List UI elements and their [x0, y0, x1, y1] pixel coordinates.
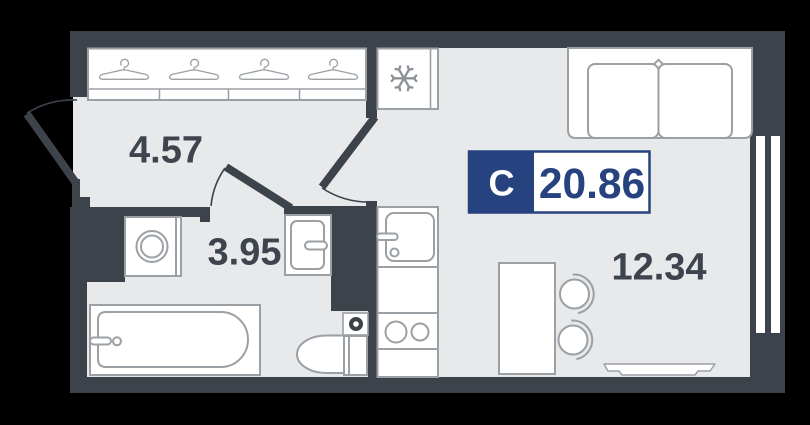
svg-text:12.34: 12.34 — [611, 247, 706, 289]
svg-text:20.86: 20.86 — [539, 161, 645, 208]
svg-text:3.95: 3.95 — [208, 232, 282, 274]
svg-text:4.57: 4.57 — [129, 130, 203, 172]
svg-text:С: С — [489, 163, 515, 204]
